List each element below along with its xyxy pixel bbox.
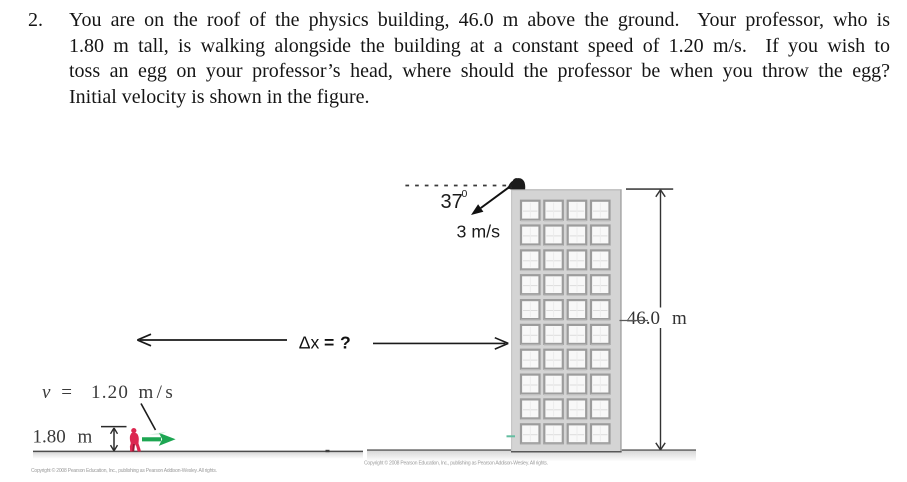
svg-text:3 m/s: 3 m/s [457,222,501,242]
svg-text:37: 37 [441,191,463,213]
svg-text:Δx=?: Δx=? [299,332,351,352]
svg-text:Copyright © 2008 Pearson Educa: Copyright © 2008 Pearson Education, Inc.… [364,459,548,466]
svg-text:v=1.20m/s: v=1.20m/s [42,382,176,403]
svg-text:Copyright © 2008 Pearson Educa: Copyright © 2008 Pearson Education, Inc.… [31,467,217,474]
svg-text:46.0m: 46.0m [627,308,687,329]
svg-text:0: 0 [462,188,468,200]
svg-text:1.80m: 1.80m [33,427,93,448]
